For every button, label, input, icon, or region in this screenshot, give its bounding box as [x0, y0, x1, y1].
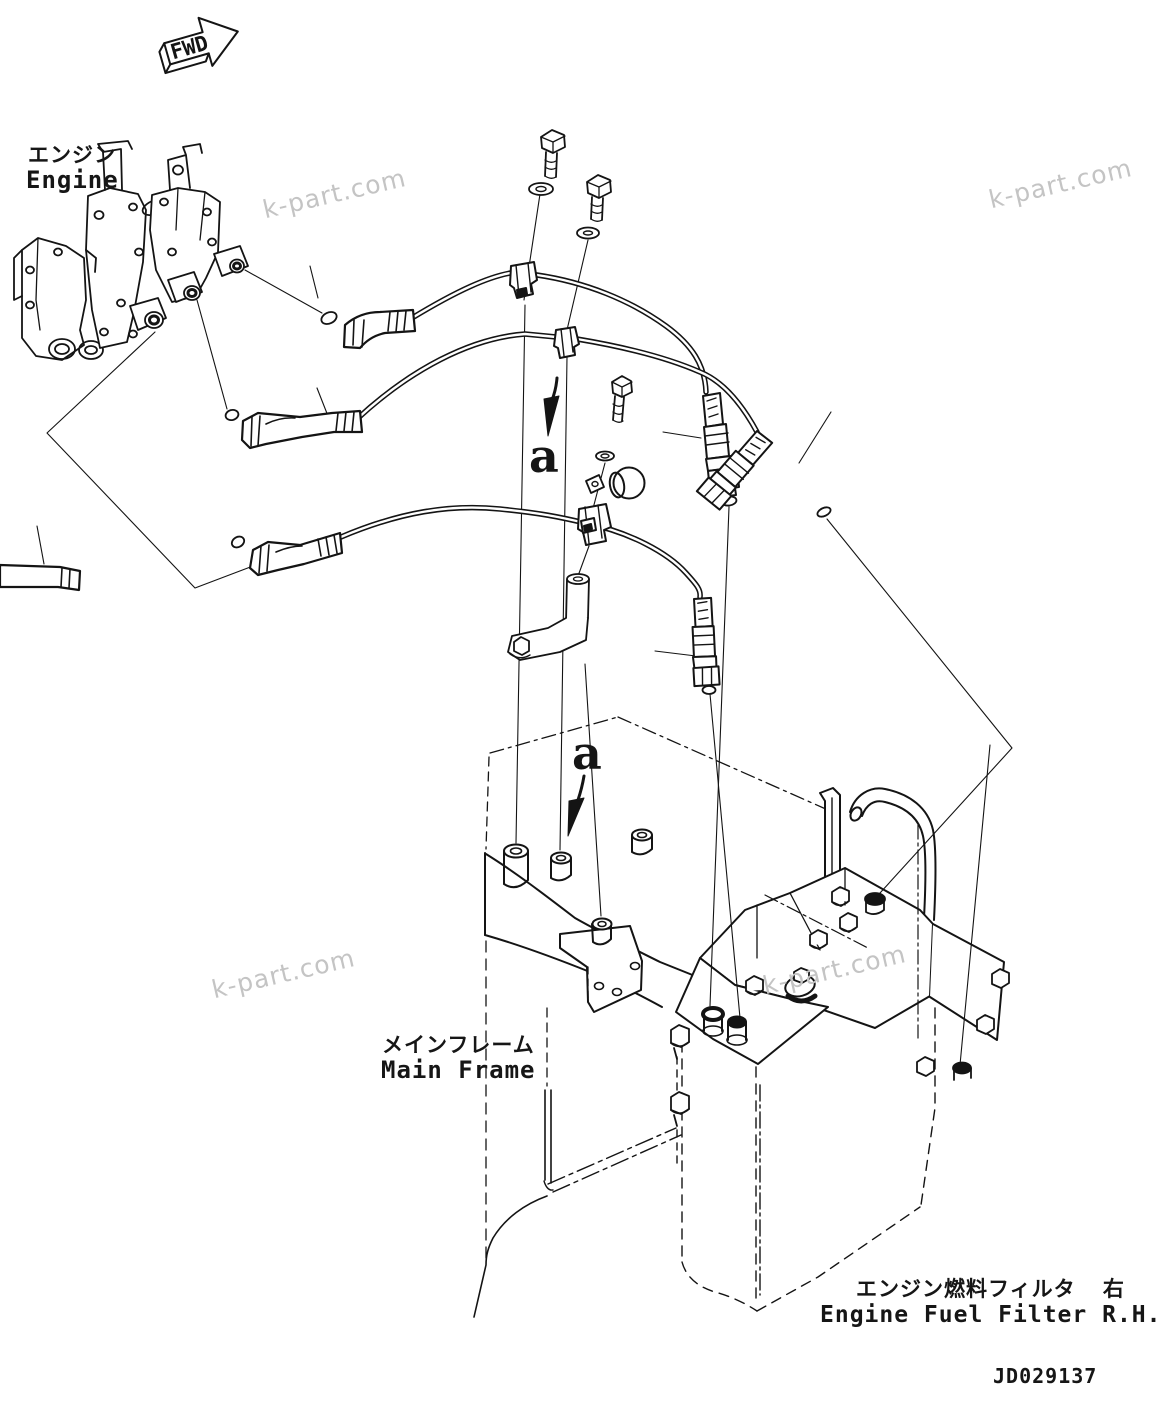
- washer-2: [577, 228, 599, 239]
- view-a-arrow-lower: [568, 776, 584, 836]
- fwd-label: FWD: [168, 31, 211, 65]
- o-ring-5: [816, 505, 832, 518]
- view-label-a-lower: a: [572, 729, 603, 779]
- engine-port-1: [214, 246, 248, 276]
- hose-connector-3: [689, 597, 724, 687]
- parts-diagram-page: FWD: [0, 0, 1168, 1416]
- bolt-2: [577, 175, 611, 239]
- main-frame-label-jp: メインフレーム: [382, 1034, 535, 1057]
- view-a-arrow-upper: [544, 378, 559, 436]
- engine-fuel-filter: [671, 788, 1009, 1311]
- o-ring-3: [230, 534, 246, 549]
- o-ring-1: [319, 310, 338, 327]
- bolt-1: [529, 130, 565, 195]
- washer-1: [529, 183, 553, 195]
- view-label-a-upper: a: [529, 432, 560, 482]
- elbow-fitting-3: [250, 533, 342, 575]
- hose-clamp-3: [578, 504, 611, 545]
- grommet-cap: [608, 468, 645, 499]
- frame-boss-2: [551, 853, 571, 881]
- hose-end-piece: [0, 565, 80, 590]
- engine-label-jp: エンジン: [28, 144, 116, 167]
- washer-3: [596, 452, 614, 461]
- fuel-filter-label-jp: エンジン燃料フィルタ 右: [856, 1278, 1125, 1301]
- elbow-fitting-1: [344, 310, 415, 348]
- hose-clamp-1: [510, 262, 537, 298]
- engine-label-en: Engine: [26, 168, 119, 194]
- drawing-number: JD029137: [993, 1366, 1097, 1388]
- elbow-fitting-2: [242, 411, 362, 448]
- bolt-3: [596, 376, 632, 461]
- o-ring-2: [224, 408, 239, 421]
- filter-body-outline: [671, 1008, 935, 1311]
- fwd-arrow-icon: FWD: [153, 8, 245, 78]
- fuel-filter-label-en: Engine Fuel Filter R.H.: [820, 1303, 1162, 1328]
- main-frame-label-en: Main Frame: [381, 1058, 536, 1084]
- o-ring-6: [703, 686, 716, 694]
- frame-bracket: [560, 926, 642, 1012]
- hose-clamp-2: [554, 327, 579, 358]
- frame-boss-3: [632, 830, 652, 855]
